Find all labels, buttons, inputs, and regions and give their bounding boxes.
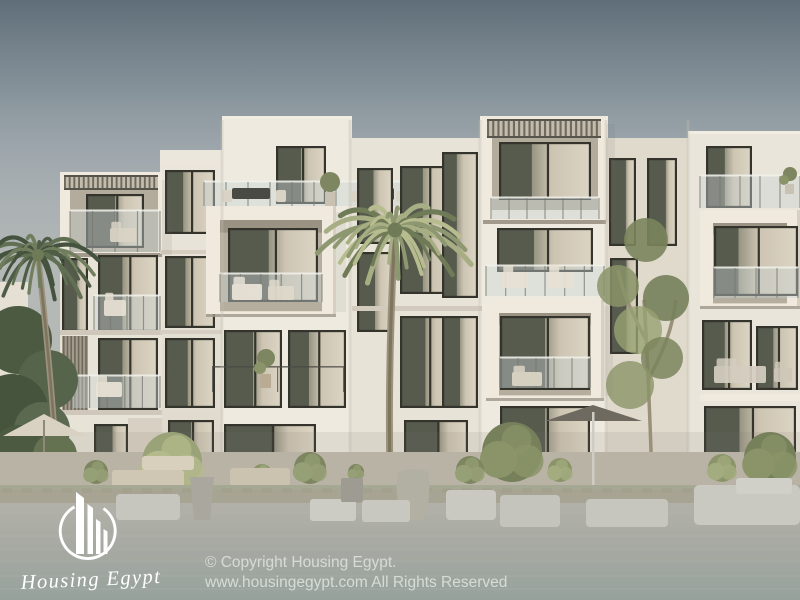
svg-text:© Copyright Housing Egypt.: © Copyright Housing Egypt. xyxy=(205,554,397,571)
svg-text:www.housingegypt.com All Right: www.housingegypt.com All Rights Reserved xyxy=(204,574,507,591)
